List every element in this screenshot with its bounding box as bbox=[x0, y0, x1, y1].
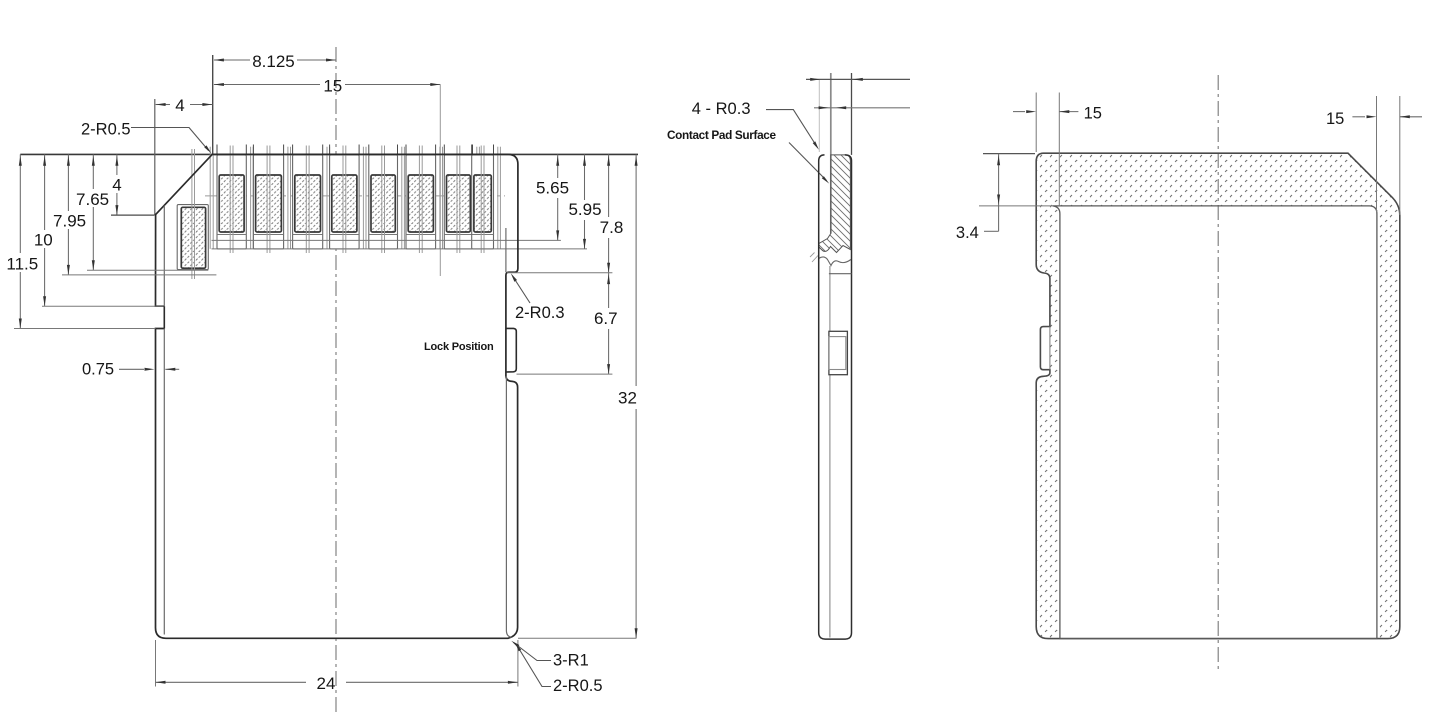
svg-text:15: 15 bbox=[1326, 110, 1344, 128]
svg-text:5.95: 5.95 bbox=[568, 200, 601, 219]
svg-text:2-R0.5: 2-R0.5 bbox=[81, 121, 131, 139]
svg-text:10: 10 bbox=[34, 231, 53, 250]
svg-text:2-R0.5: 2-R0.5 bbox=[553, 677, 603, 695]
svg-text:8.125: 8.125 bbox=[252, 52, 295, 71]
svg-text:32: 32 bbox=[618, 389, 637, 408]
svg-text:0.75: 0.75 bbox=[82, 361, 114, 379]
svg-text:4: 4 bbox=[112, 175, 121, 194]
svg-text:15: 15 bbox=[323, 77, 342, 96]
svg-text:5.65: 5.65 bbox=[536, 178, 569, 197]
svg-text:24: 24 bbox=[317, 674, 336, 693]
svg-text:15: 15 bbox=[1084, 105, 1102, 123]
svg-text:Lock Position: Lock Position bbox=[424, 341, 494, 353]
svg-text:3-R1: 3-R1 bbox=[553, 652, 589, 670]
svg-text:Contact Pad Surface: Contact Pad Surface bbox=[667, 128, 777, 142]
svg-text:11.5: 11.5 bbox=[6, 255, 38, 274]
svg-text:2-R0.3: 2-R0.3 bbox=[515, 304, 565, 322]
svg-text:7.8: 7.8 bbox=[600, 218, 624, 237]
svg-text:6.7: 6.7 bbox=[594, 309, 618, 328]
svg-text:7.65: 7.65 bbox=[76, 190, 109, 209]
svg-text:7.95: 7.95 bbox=[53, 212, 86, 231]
svg-text:3.4: 3.4 bbox=[956, 224, 979, 242]
svg-text:4 - R0.3: 4 - R0.3 bbox=[692, 100, 751, 118]
svg-text:4: 4 bbox=[175, 96, 184, 115]
